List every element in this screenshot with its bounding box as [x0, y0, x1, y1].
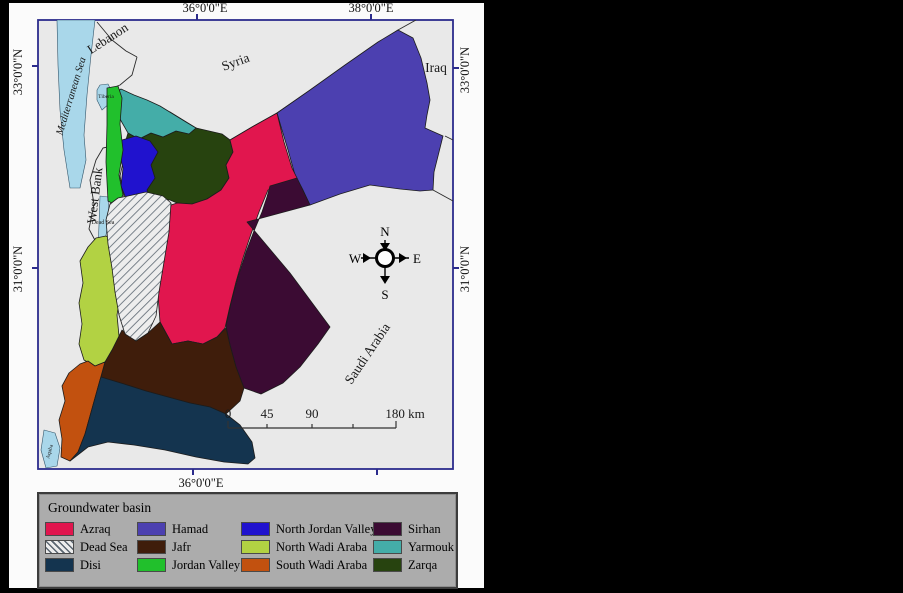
legend-swatch-dead-sea	[45, 540, 74, 554]
legend-item-yarmouk: Yarmouk	[373, 538, 453, 556]
legend-swatch-azraq	[45, 522, 74, 536]
axis-left-33n: 33°0'0"N	[11, 49, 25, 95]
axis-bottom-36e: 36°0'0"E	[179, 476, 224, 490]
axis-top-38e: 38°0'0"E	[349, 1, 394, 15]
legend-swatch-jordan-valley	[137, 558, 166, 572]
legend-item-jafr: Jafr	[137, 538, 241, 556]
legend-swatch-zarqa	[373, 558, 402, 572]
compass-s: S	[381, 287, 388, 302]
label-tiberia: Tiberia	[98, 94, 114, 100]
legend-item-disi: Disi	[45, 556, 137, 574]
scale-90: 90	[306, 406, 319, 421]
axis-top-36e: 36°0'0"E	[183, 1, 228, 15]
legend-swatch-sirhan	[373, 522, 402, 536]
legend-title: Groundwater basin	[39, 494, 456, 518]
legend-item-dead-sea: Dead Sea	[45, 538, 137, 556]
legend-swatch-yarmouk	[373, 540, 402, 554]
scale-45: 45	[261, 406, 274, 421]
legend-item-jordan-valley: Jordan Valley	[137, 556, 241, 574]
legend-item-south-wadi-araba: South Wadi Araba	[241, 556, 373, 574]
axis-left-31n: 31°0'0"N	[11, 246, 25, 292]
scale-180: 180 km	[385, 406, 424, 421]
legend-item-north-wadi-araba: North Wadi Araba	[241, 538, 373, 556]
legend-item-azraq: Azraq	[45, 520, 137, 538]
label-dead-sea: Dead Sea	[92, 220, 115, 226]
basin-jordan-valley	[106, 86, 123, 206]
compass-n: N	[380, 224, 390, 239]
compass-e: E	[413, 251, 421, 266]
legend-swatch-south-wadi-araba	[241, 558, 270, 572]
legend-box: Groundwater basin Azraq Hamad North Jord…	[37, 492, 458, 589]
axis-right-33n: 33°0'0"N	[458, 47, 472, 93]
legend-swatch-jafr	[137, 540, 166, 554]
scale-0: 0	[225, 406, 232, 421]
legend-swatch-disi	[45, 558, 74, 572]
compass-w: W	[349, 251, 362, 266]
figure-page: { "axis": { "top_36": "36°0'0\"E", "top_…	[0, 0, 903, 593]
axis-right-31n: 31°0'0"N	[458, 246, 472, 292]
legend-item-sirhan: Sirhan	[373, 520, 453, 538]
label-iraq: Iraq	[425, 60, 447, 75]
legend-swatch-north-jordan-valley	[241, 522, 270, 536]
legend-swatch-north-wadi-araba	[241, 540, 270, 554]
legend-grid: Azraq Hamad North Jordan Valley Sirhan D…	[45, 520, 456, 574]
legend-item-north-jordan-valley: North Jordan Valley	[241, 520, 373, 538]
legend-item-hamad: Hamad	[137, 520, 241, 538]
legend-item-zarqa: Zarqa	[373, 556, 453, 574]
legend-swatch-hamad	[137, 522, 166, 536]
